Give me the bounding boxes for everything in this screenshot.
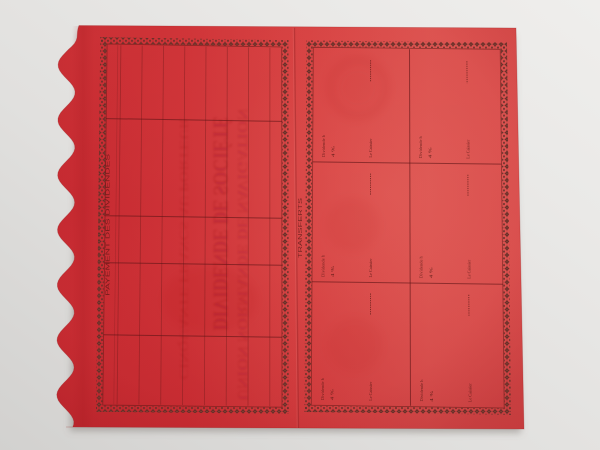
svg-text:Dividende h: Dividende h xyxy=(418,136,423,158)
svg-text:4 %: 4 % xyxy=(330,265,335,277)
svg-text:UNION NORMANDE DE NAVIGATION: UNION NORMANDE DE NAVIGATION xyxy=(234,109,250,401)
svg-text:TRANSFERTS: TRANSFERTS xyxy=(298,197,304,258)
svg-text:Le Caissier: Le Caissier xyxy=(368,138,373,158)
svg-text:Le Caissier: Le Caissier xyxy=(466,259,471,279)
svg-text:4 %: 4 % xyxy=(428,267,433,279)
svg-text:Le Caissier: Le Caissier xyxy=(368,258,373,278)
svg-text:Dividende h: Dividende h xyxy=(419,380,424,402)
svg-text:Dividende h: Dividende h xyxy=(320,378,325,400)
svg-text:4 %: 4 % xyxy=(330,389,335,401)
svg-text:Dividende h: Dividende h xyxy=(419,256,424,278)
svg-text:Le Caissier: Le Caissier xyxy=(467,383,472,403)
svg-text:4 %: 4 % xyxy=(429,390,434,402)
svg-text:Le Caissier: Le Caissier xyxy=(368,381,373,401)
svg-text:CINQUANTE FRANCS AU PORTEUR: CINQUANTE FRANCS AU PORTEUR xyxy=(177,117,192,380)
svg-text:4 %: 4 % xyxy=(331,146,336,158)
svg-text:Dividende h: Dividende h xyxy=(321,135,326,157)
svg-text:4 %: 4 % xyxy=(428,147,433,159)
svg-text:Dividende h: Dividende h xyxy=(321,255,326,277)
svg-text:PAYEMENT DES DIVIDENDES: PAYEMENT DES DIVIDENDES xyxy=(105,153,111,296)
svg-text:Le Caissier: Le Caissier xyxy=(465,139,470,159)
